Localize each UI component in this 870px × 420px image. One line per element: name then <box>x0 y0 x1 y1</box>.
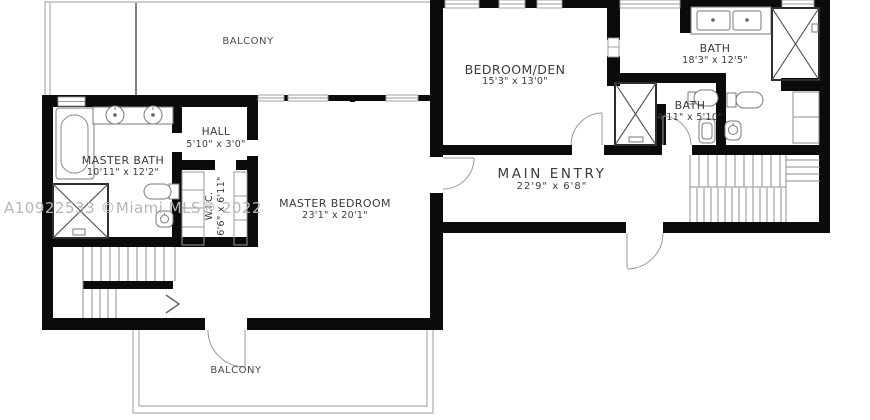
room-name: MASTER BEDROOM <box>279 197 391 210</box>
label-master-bedroom: MASTER BEDROOM 23'1" x 20'1" <box>279 197 391 222</box>
stair-direction-arrow <box>166 295 179 313</box>
label-bath-large: BATH 18'3" x 12'5" <box>682 42 748 67</box>
label-balcony-top: BALCONY <box>222 36 273 47</box>
room-name: MAIN ENTRY <box>498 168 607 181</box>
room-name: BATH <box>682 42 748 55</box>
balcony-bottom-outline <box>133 322 433 413</box>
toilet-icon-bath-large <box>727 92 763 108</box>
shower-icon-bath-small <box>615 83 656 145</box>
label-main-entry: MAIN ENTRY 22'9" x 6'8" <box>498 168 607 193</box>
room-dims: 22'9" x 6'8" <box>498 181 607 193</box>
room-name: HALL <box>186 126 245 139</box>
label-balcony-bottom: BALCONY <box>210 365 261 376</box>
room-dims: 15'3" x 13'0" <box>465 76 566 88</box>
door-bedroom-den <box>571 113 602 145</box>
double-sink-vanity-icon-bath <box>691 7 771 34</box>
door-gaps <box>205 145 692 330</box>
toilet-icon-master <box>144 184 179 199</box>
room-name: MASTER BATH <box>82 154 164 167</box>
linen-closet-shelves <box>793 92 819 143</box>
room-dims: 23'1" x 20'1" <box>279 210 391 222</box>
room-dims: 10'11" x 12'2" <box>82 167 164 179</box>
double-sink-vanity-icon <box>93 106 173 124</box>
shower-icon-bath-large <box>772 8 819 80</box>
room-dims: 4'11" x 5'10" <box>657 112 723 124</box>
balcony-top-outline <box>45 2 434 97</box>
door-master-bedroom-to-entry <box>443 158 474 189</box>
room-name: BEDROOM/DEN <box>465 63 566 76</box>
mls-watermark: A10922533 ©Miami MLS® 2022 <box>4 199 262 217</box>
floor-plan: BALCONY MASTER BATH 10'11" x 12'2" HALL … <box>0 0 870 420</box>
door-main-entry <box>627 233 663 269</box>
label-bedroom-den: BEDROOM/DEN 15'3" x 13'0" <box>465 63 566 88</box>
room-name: BATH <box>657 99 723 112</box>
label-hall: HALL 5'10" x 3'0" <box>186 126 245 151</box>
staircase-right <box>690 155 820 222</box>
label-master-bath: MASTER BATH 10'11" x 12'2" <box>82 154 164 179</box>
bidet-icon-bath-large <box>725 121 741 140</box>
room-dims: 18'3" x 12'5" <box>682 55 748 67</box>
door-balcony-bottom <box>208 330 245 367</box>
label-bath-small: BATH 4'11" x 5'10" <box>657 99 723 124</box>
room-dims: 5'10" x 3'0" <box>186 139 245 151</box>
